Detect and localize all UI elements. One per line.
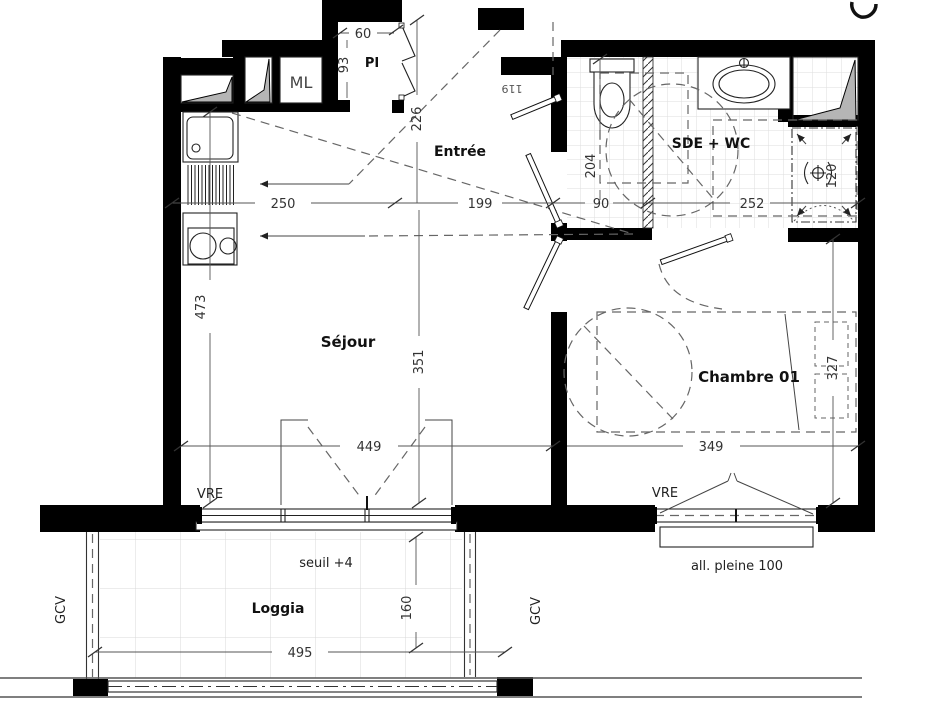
dim-shower-width: 120: [825, 164, 840, 189]
label-entree: Entrée: [434, 144, 486, 160]
dim-kitchen-height: 473: [194, 295, 209, 320]
annotation-gcv-right: GCV: [529, 597, 544, 625]
dim-chambre-width: 349: [699, 440, 724, 455]
closet-pi-label: PI: [365, 56, 379, 71]
dim-entree-width: 199: [468, 197, 493, 212]
dim-entrance-door-width: 119: [502, 82, 523, 95]
dim-loggia-width: 495: [288, 646, 313, 661]
washing-machine-label: ML: [290, 73, 313, 92]
annotation-vre-chambre: VRE: [652, 486, 678, 501]
bifold-door: [399, 23, 415, 100]
dim-chambre-height: 327: [826, 356, 841, 381]
dim-wc-width: 90: [593, 197, 610, 212]
chambre-door-leaf: [523, 236, 563, 310]
sejour-window: [196, 420, 457, 530]
dim-sde-width: 252: [740, 197, 765, 212]
label-chambre: Chambre 01: [698, 368, 800, 386]
dim-placard-depth: 93: [337, 57, 352, 74]
label-sejour: Séjour: [321, 333, 376, 351]
dim-kitchen-width: 250: [271, 197, 296, 212]
sde-door-leaf: [525, 153, 563, 228]
annotation-seuil: seuil +4: [299, 556, 353, 571]
door-swing-arc: [659, 264, 722, 309]
annotation-vre-sejour: VRE: [197, 487, 223, 502]
dim-entree-height: 226: [410, 107, 425, 132]
dim-wc-height: 204: [584, 154, 599, 179]
chambre-window: [652, 473, 821, 547]
chambre-window-sill: [660, 527, 813, 547]
duct-niche-2: [246, 59, 270, 102]
label-sde-wc: SDE + WC: [672, 136, 750, 152]
kitchen: [183, 112, 238, 265]
partial-glyph: [852, 2, 876, 17]
loggia-right-rail: [465, 532, 476, 677]
dim-sejour-window-width: 449: [357, 440, 382, 455]
loggia-post-left: [73, 679, 108, 696]
annotation-allege: all. pleine 100: [691, 559, 783, 574]
label-loggia: Loggia: [252, 601, 305, 617]
floorplan-svg: ML PI 119: [0, 0, 940, 705]
annotation-gcv-left: GCV: [54, 596, 69, 624]
dim-sejour-height: 351: [412, 350, 427, 375]
sde-chambre-door-leaf: [660, 234, 733, 266]
dim-placard-width: 60: [355, 27, 372, 42]
kitchen-drainer: [188, 165, 234, 205]
loggia-post-right: [497, 677, 533, 696]
duct-niche-1: [182, 77, 232, 102]
dim-loggia-depth: 160: [400, 596, 415, 621]
floor-plan: ML PI 119: [0, 0, 940, 705]
